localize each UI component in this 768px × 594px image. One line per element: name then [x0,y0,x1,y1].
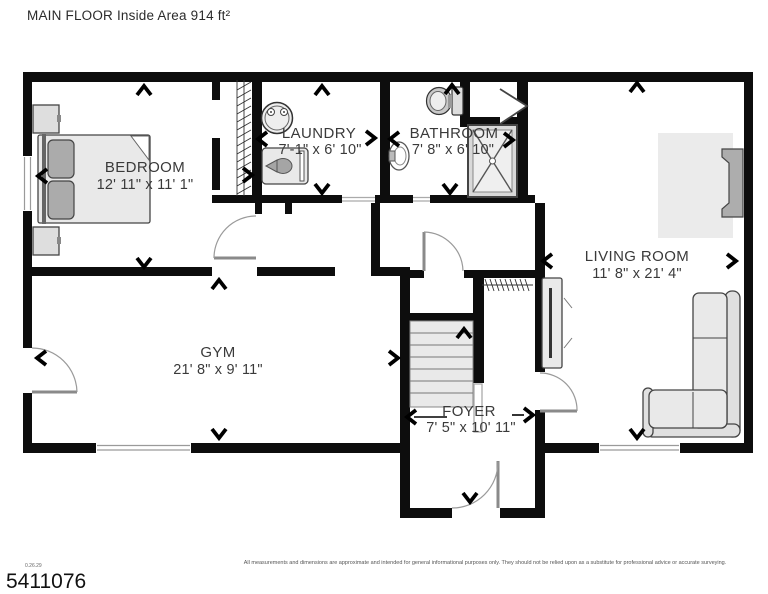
arrow-up-icon [630,83,644,92]
door-bathroom-opening [413,195,430,203]
door-laundry-opening [342,195,375,203]
arrow-up-icon [137,86,151,95]
footer-disclaimer: All measurements and dimensions are appr… [205,560,765,566]
page-title: MAIN FLOOR Inside Area 914 ft² [27,8,230,23]
room-label-bedroom: BEDROOM [105,159,185,176]
door-living-room [535,372,577,411]
arrow-right-icon [366,131,375,145]
door-bedroom [212,216,257,276]
room-label-living-room: LIVING ROOM [585,248,689,265]
arrow-down-icon [212,429,226,438]
arrow-right-icon [727,254,736,268]
room-dims-laundry: 7'-1" x 6' 10" [278,142,361,158]
door-gym-exterior [22,348,77,393]
room-label-gym: GYM [200,344,235,361]
bathroom-sink-icon [389,142,409,170]
floorplan-drawing: BEDROOM 12' 11" x 11' 1" LAUNDRY 7'-1" x… [0,0,768,594]
foyer-closet [482,279,533,291]
arrow-left-icon [37,351,46,365]
room-dims-living-room: 11' 8" x 21' 4" [592,266,682,282]
window-living-room [599,442,680,454]
nightstand [33,105,61,133]
arrow-left-icon [390,132,399,146]
arrow-down-icon [137,258,151,267]
room-label-foyer: FOYER [442,403,496,420]
sectional-sofa [643,291,740,437]
arrow-down-icon [630,429,644,438]
room-label-laundry: LAUNDRY [282,125,356,142]
window-gym [96,442,191,454]
footer-version: 0.26.29 [25,563,42,569]
arrow-down-icon [463,493,477,502]
floorplan-page: MAIN FLOOR Inside Area 914 ft² [0,0,768,594]
arrow-right-icon [389,351,398,365]
tv-console [542,278,572,368]
arrow-up-icon [315,86,329,95]
door-foyer-hall [424,232,464,278]
room-dims-gym: 21' 8" x 9' 11" [173,362,263,378]
room-dims-bedroom: 12' 11" x 11' 1" [97,177,194,193]
room-label-bathroom: BATHROOM [410,125,499,142]
door-front-entry [452,461,500,518]
arrow-down-icon [443,184,457,193]
room-dims-foyer: 7' 5" x 10' 11" [426,420,516,436]
room-dims-bathroom: 7' 8" x 6' 10" [412,142,494,158]
arrow-up-icon [212,280,226,289]
listing-number: 5411076 [6,570,86,594]
nightstand [33,227,61,255]
arrow-down-icon [315,184,329,193]
pillow [48,181,74,219]
pillow [48,140,74,178]
window-bedroom [22,156,33,211]
